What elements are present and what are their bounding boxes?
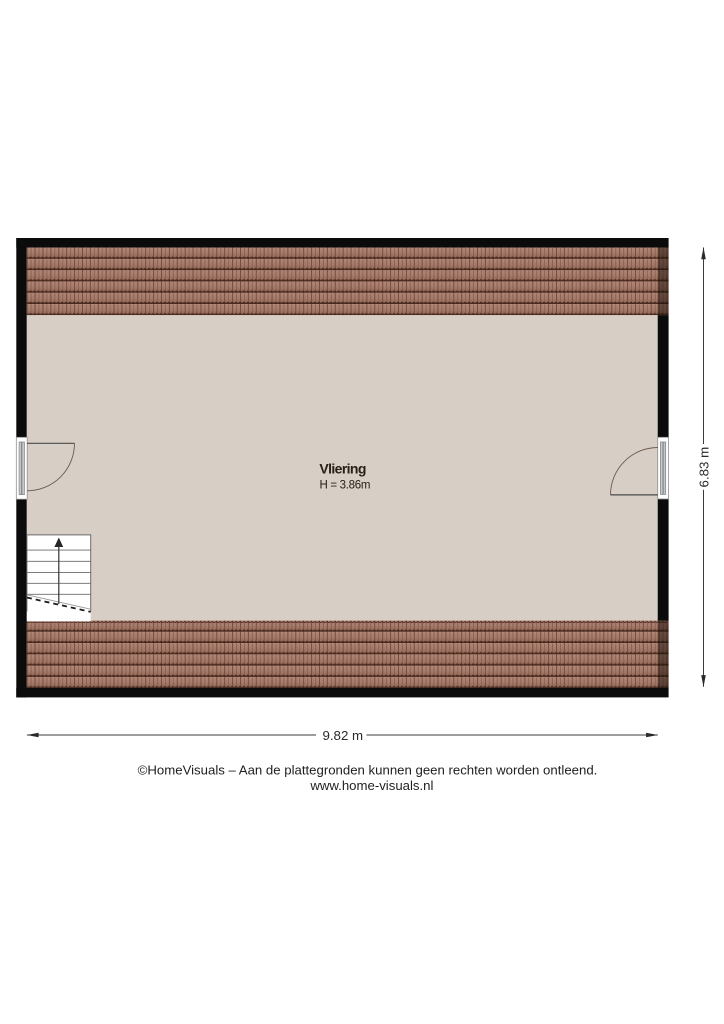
svg-text:Vliering: Vliering: [319, 461, 365, 477]
svg-text:©HomeVisuals – Aan de plattegr: ©HomeVisuals – Aan de plattegronden kunn…: [138, 762, 598, 777]
svg-text:www.home-visuals.nl: www.home-visuals.nl: [309, 778, 433, 793]
svg-text:9.82 m: 9.82 m: [322, 728, 363, 743]
svg-text:6.83 m: 6.83 m: [696, 447, 711, 488]
svg-text:H = 3.86m: H = 3.86m: [319, 479, 370, 491]
